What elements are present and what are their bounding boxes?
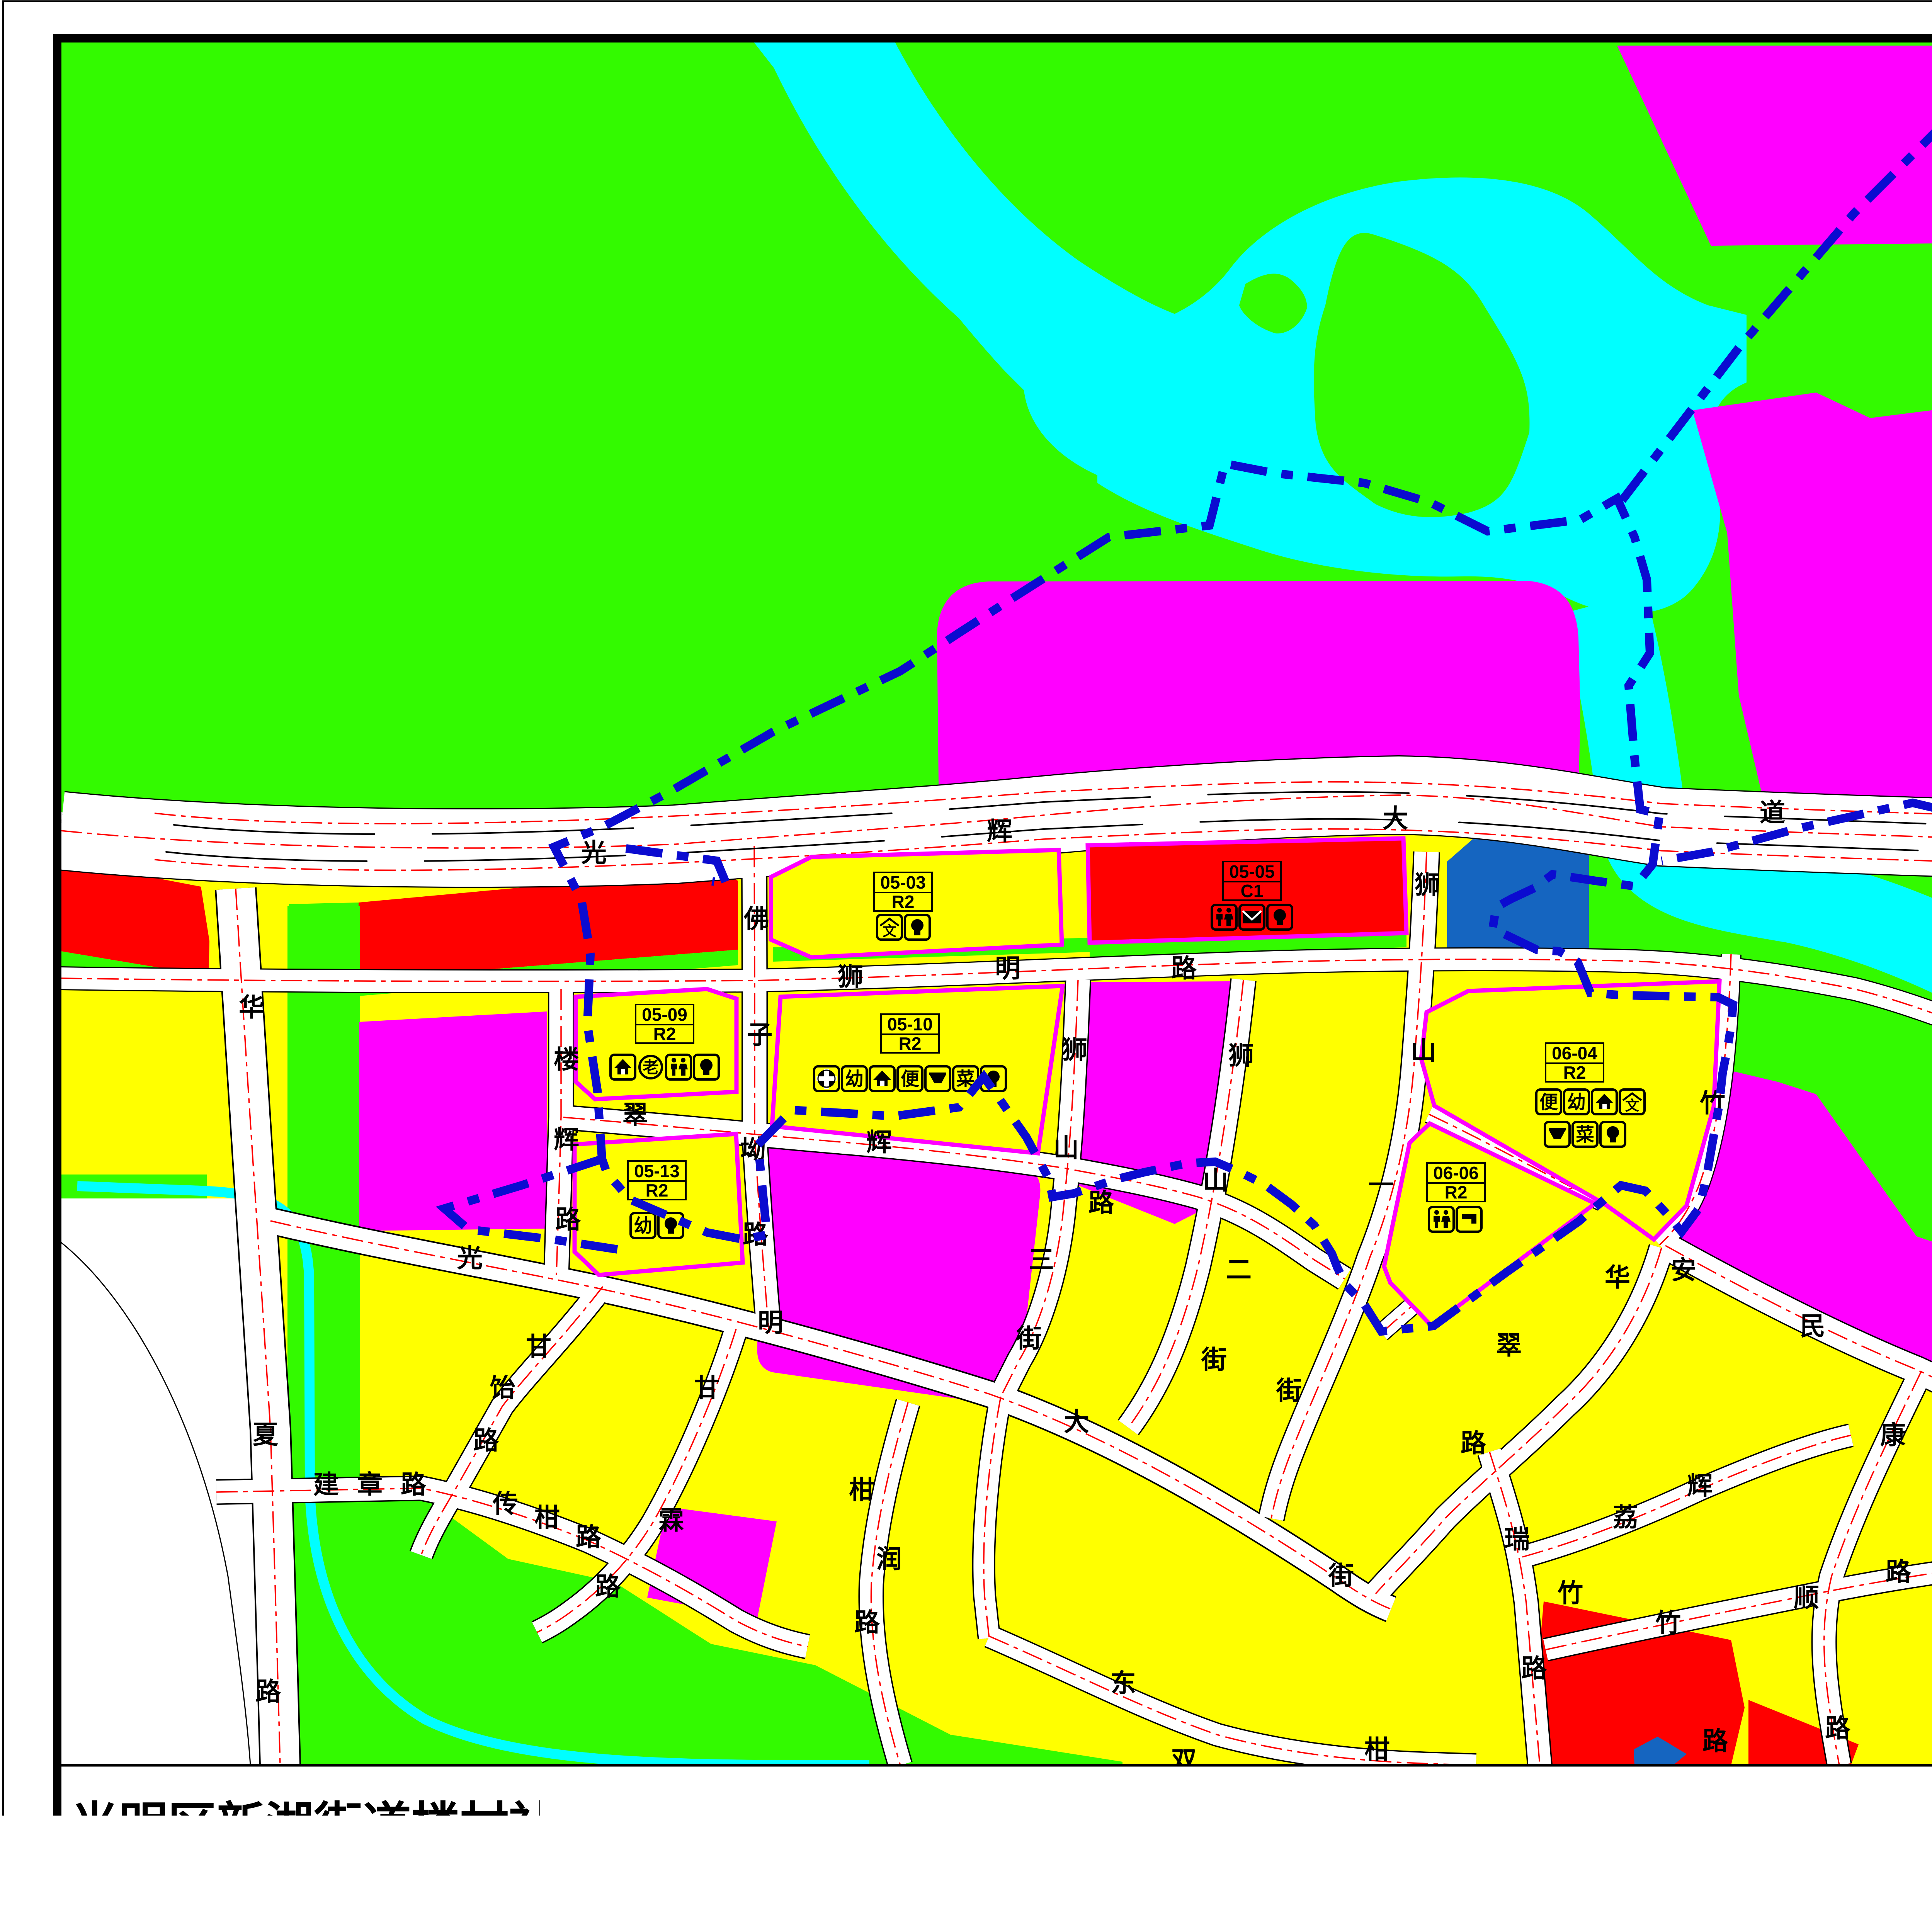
svg-text:明: 明 xyxy=(758,1308,783,1337)
svg-text:光明区新湖街道楼村社区狮山工业园土地整备利益统筹项目土地整备: 光明区新湖街道楼村社区狮山工业园土地整备利益统筹项目土地整备规划研究（7块留用土… xyxy=(70,1798,1932,1853)
svg-text:狮: 狮 xyxy=(1062,1035,1087,1064)
svg-text:辉: 辉 xyxy=(1687,1471,1713,1500)
svg-text:安: 安 xyxy=(1671,1256,1696,1284)
svg-text:顺: 顺 xyxy=(1794,1583,1819,1612)
svg-text:佛: 佛 xyxy=(743,904,769,933)
svg-text:翠: 翠 xyxy=(1496,1331,1522,1360)
svg-text:辉: 辉 xyxy=(987,817,1012,845)
svg-text:柑: 柑 xyxy=(1364,1735,1390,1764)
svg-text:大: 大 xyxy=(1383,804,1408,833)
svg-text:R2: R2 xyxy=(1563,1062,1586,1083)
svg-text:辉: 辉 xyxy=(554,1125,579,1154)
svg-text:05-10: 05-10 xyxy=(887,1014,933,1034)
svg-text:狮: 狮 xyxy=(1415,870,1440,899)
svg-text:明: 明 xyxy=(995,954,1020,982)
svg-text:05-09: 05-09 xyxy=(642,1005,687,1025)
svg-text:华: 华 xyxy=(239,993,264,1022)
svg-text:街: 街 xyxy=(1201,1345,1227,1374)
svg-text:民: 民 xyxy=(1800,1312,1825,1340)
svg-text:一: 一 xyxy=(1368,1171,1394,1199)
svg-text:道: 道 xyxy=(1760,798,1785,827)
svg-text:柑: 柑 xyxy=(534,1503,560,1532)
svg-text:山: 山 xyxy=(1411,1036,1436,1065)
svg-text:路: 路 xyxy=(1702,1727,1728,1755)
svg-text:饴: 饴 xyxy=(490,1373,515,1402)
svg-text:甘: 甘 xyxy=(526,1332,551,1361)
svg-text:街: 街 xyxy=(1276,1376,1302,1405)
svg-text:R2: R2 xyxy=(653,1024,676,1044)
svg-text:路: 路 xyxy=(1171,954,1197,982)
svg-text:华: 华 xyxy=(1605,1263,1630,1292)
svg-text:柑: 柑 xyxy=(849,1475,874,1504)
svg-text:辉: 辉 xyxy=(866,1128,892,1156)
svg-text:06-06: 06-06 xyxy=(1433,1163,1479,1183)
svg-text:夏: 夏 xyxy=(253,1420,279,1449)
svg-text:康: 康 xyxy=(1880,1421,1906,1449)
svg-text:大: 大 xyxy=(1064,1407,1089,1436)
svg-text:C1: C1 xyxy=(1241,881,1264,901)
svg-text:霖: 霖 xyxy=(658,1506,684,1535)
svg-text:路: 路 xyxy=(1825,1714,1851,1742)
svg-text:甘: 甘 xyxy=(694,1373,720,1402)
svg-text:路: 路 xyxy=(576,1523,602,1551)
svg-text:路: 路 xyxy=(255,1677,281,1706)
svg-text:05-05: 05-05 xyxy=(1229,862,1275,882)
svg-text:路: 路 xyxy=(854,1608,880,1637)
svg-text:光: 光 xyxy=(457,1244,483,1272)
svg-text:路: 路 xyxy=(1886,1557,1912,1586)
svg-text:二: 二 xyxy=(1226,1255,1252,1284)
svg-text:翠: 翠 xyxy=(622,1100,648,1129)
svg-text:06-04: 06-04 xyxy=(1552,1043,1597,1063)
svg-text:路: 路 xyxy=(401,1470,427,1499)
svg-text:路: 路 xyxy=(595,1572,621,1601)
svg-text:狮: 狮 xyxy=(1228,1041,1254,1070)
svg-text:路: 路 xyxy=(555,1205,581,1234)
svg-text:R2: R2 xyxy=(899,1033,922,1054)
svg-text:路: 路 xyxy=(1521,1654,1547,1683)
svg-text:三: 三 xyxy=(1029,1245,1054,1274)
svg-text:东: 东 xyxy=(1111,1669,1136,1697)
svg-text:路: 路 xyxy=(473,1426,499,1455)
svg-text:润: 润 xyxy=(876,1545,902,1573)
svg-text:楼: 楼 xyxy=(554,1045,579,1074)
svg-text:竹: 竹 xyxy=(1558,1579,1583,1607)
svg-text:街: 街 xyxy=(1328,1561,1354,1590)
svg-text:章: 章 xyxy=(357,1470,383,1499)
svg-text:街: 街 xyxy=(1016,1324,1042,1353)
svg-text:05-03: 05-03 xyxy=(880,872,926,892)
svg-text:建: 建 xyxy=(313,1470,339,1499)
svg-text:荔: 荔 xyxy=(1613,1503,1638,1531)
svg-text:路: 路 xyxy=(1461,1429,1486,1457)
svg-text:R2: R2 xyxy=(1445,1182,1468,1202)
svg-text:瑞: 瑞 xyxy=(1504,1525,1530,1554)
svg-text:子: 子 xyxy=(747,1020,772,1049)
svg-text:竹: 竹 xyxy=(1655,1608,1681,1637)
svg-text:传: 传 xyxy=(492,1489,518,1518)
svg-text:光: 光 xyxy=(581,838,607,867)
svg-text:路: 路 xyxy=(1088,1188,1114,1217)
svg-text:山: 山 xyxy=(1053,1134,1079,1162)
svg-text:狮: 狮 xyxy=(838,962,863,991)
svg-text:05-13: 05-13 xyxy=(634,1161,680,1181)
svg-text:R2: R2 xyxy=(892,892,915,912)
svg-text:R2: R2 xyxy=(646,1180,668,1200)
